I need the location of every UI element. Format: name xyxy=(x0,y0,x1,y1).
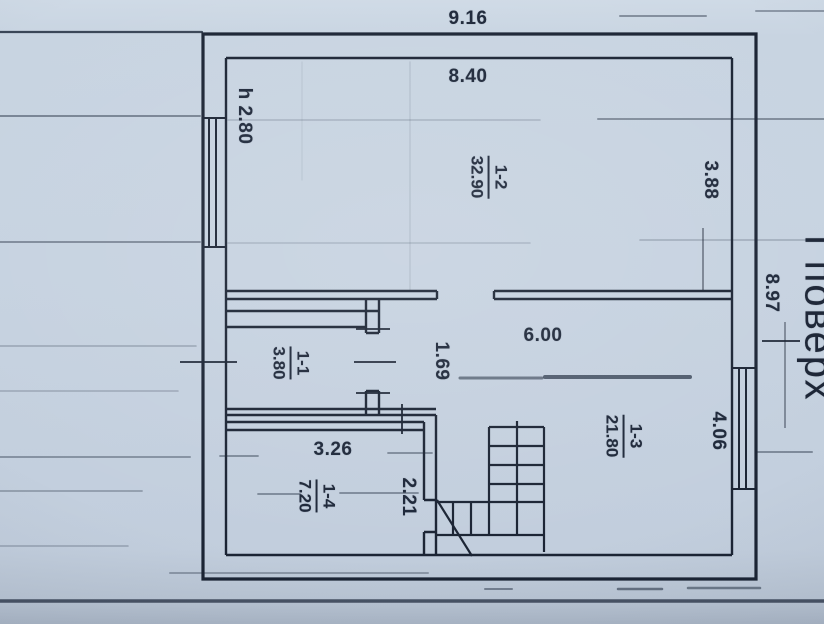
dim-ceiling-height: h 2.80 xyxy=(233,88,255,145)
dim-upper-right: 3.88 xyxy=(699,161,721,200)
dim-total-depth: 8.97 xyxy=(760,274,782,313)
staircase-symbol xyxy=(437,421,544,556)
interior-walls xyxy=(226,291,732,555)
floor-title: І поверх xyxy=(796,235,824,402)
window-symbol-right xyxy=(732,368,756,489)
room-area: 3.80 xyxy=(269,346,290,379)
exterior-walls xyxy=(203,34,756,579)
floorplan-drawing xyxy=(0,0,824,624)
dim-hall-width: 6.00 xyxy=(524,325,563,347)
room-number: 1-1 xyxy=(290,346,313,379)
floorplan-scan: 9.16 8.40 6.00 3.26 h 2.80 3.88 8.97 1.6… xyxy=(0,0,824,624)
room-label-1-3: 1-3 21.80 xyxy=(602,415,645,458)
dim-corridor-width: 2.21 xyxy=(397,478,419,517)
room-number: 1-2 xyxy=(488,156,511,199)
dim-overall-width: 9.16 xyxy=(449,8,488,30)
room-label-1-1: 1-1 3.80 xyxy=(269,346,312,379)
room-area: 7.20 xyxy=(295,479,316,512)
dim-niche-width: 1.69 xyxy=(430,342,452,381)
window-symbol-left xyxy=(203,118,226,247)
room-number: 1-3 xyxy=(623,415,646,458)
room-label-1-2: 1-2 32.90 xyxy=(467,156,510,199)
dim-inner-width: 8.40 xyxy=(449,66,488,88)
dimension-ticks xyxy=(180,228,800,434)
room-area: 32.90 xyxy=(467,156,488,199)
dim-room-1-4-width: 3.26 xyxy=(314,439,353,461)
dim-lower-right: 4.06 xyxy=(707,412,729,451)
room-area: 21.80 xyxy=(602,415,623,458)
room-label-1-4: 1-4 7.20 xyxy=(295,479,338,512)
room-number: 1-4 xyxy=(316,479,339,512)
